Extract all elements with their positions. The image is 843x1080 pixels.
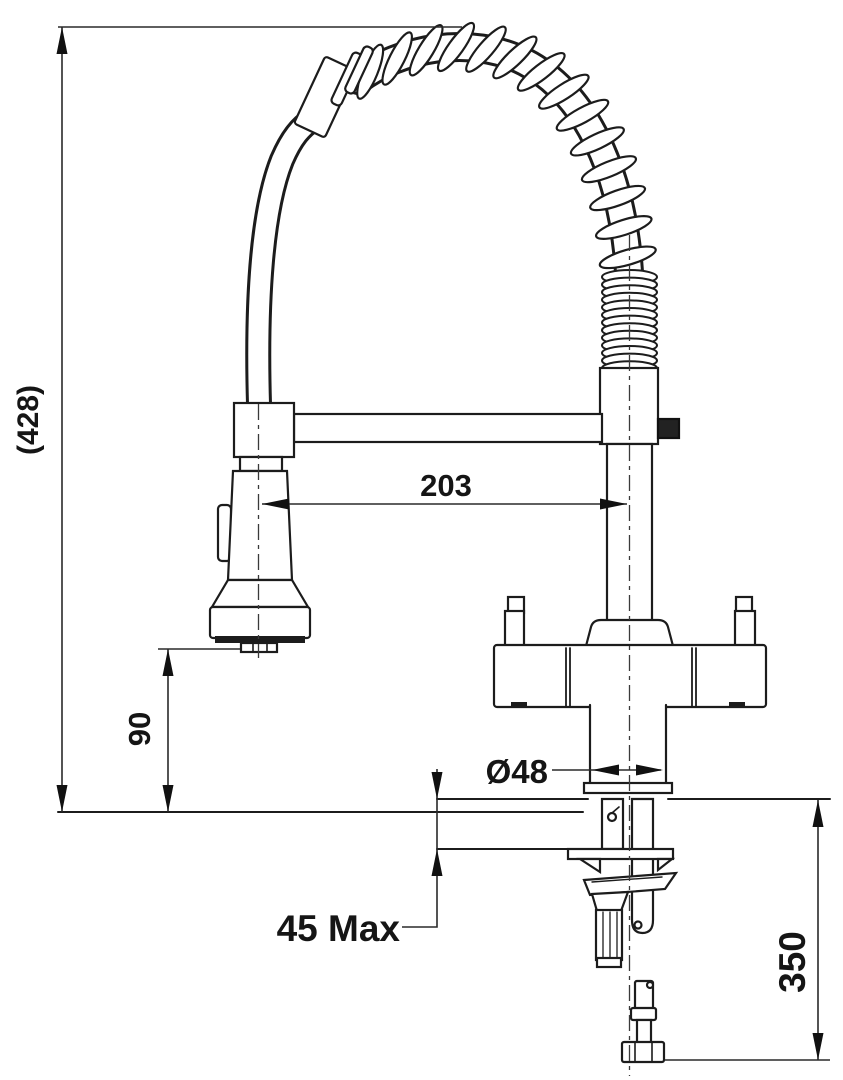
- holder-block: [234, 403, 294, 457]
- base-flange: [584, 783, 672, 793]
- label-overall-height: (428): [12, 385, 45, 455]
- diagram-canvas: (428) 90 203 Ø48 45 Max 350: [0, 0, 843, 1080]
- dimension-arrowhead: [57, 27, 68, 54]
- dimension-arrowhead: [813, 800, 824, 827]
- mounting-shank: [602, 799, 623, 849]
- dimension-arrowheads: [57, 27, 824, 1060]
- left-lever: [505, 611, 524, 647]
- dimension-arrowhead: [432, 772, 443, 799]
- label-spout-reach: 203: [420, 468, 472, 503]
- label-base-diameter: Ø48: [486, 753, 548, 790]
- threaded-stud: [596, 910, 622, 960]
- leader-deck-thickness: [402, 769, 437, 927]
- clip-hole: [608, 813, 616, 821]
- dimension-lines: [58, 27, 830, 1060]
- dimension-arrowhead: [813, 1033, 824, 1060]
- dimension-arrowhead: [163, 649, 174, 676]
- spray-flare: [212, 580, 308, 607]
- label-hose-length: 350: [772, 931, 813, 993]
- mounting-hardware: [568, 799, 676, 1062]
- faucet-drawing: [58, 19, 830, 1062]
- spray-bell: [210, 607, 310, 638]
- gooseneck-tube: [258, 119, 313, 404]
- dimension-arrowhead: [163, 785, 174, 812]
- mounting-plate: [568, 849, 673, 859]
- dimension-arrowhead: [57, 785, 68, 812]
- faucet-installation-diagram: (428) 90 203 Ø48 45 Max 350: [0, 0, 843, 1080]
- spray-body: [228, 471, 292, 580]
- right-lever: [735, 611, 755, 647]
- plate-gusset-right: [658, 859, 672, 870]
- adjuster-knob: [658, 419, 679, 438]
- hex-nut: [622, 1042, 664, 1062]
- supply-hose-tube: [632, 799, 653, 933]
- plate-gusset-left: [580, 859, 600, 872]
- stud-lip: [597, 958, 621, 967]
- support-arm: [294, 414, 602, 442]
- hose-end-fitting: [622, 981, 664, 1062]
- counter-line: [58, 799, 830, 849]
- dimension-arrowhead: [432, 849, 443, 876]
- holder-collar: [240, 457, 282, 471]
- label-deck-thickness: 45 Max: [277, 908, 401, 949]
- label-head-to-deck: 90: [122, 712, 157, 746]
- spray-head: [210, 403, 310, 652]
- washer-funnel: [592, 892, 628, 911]
